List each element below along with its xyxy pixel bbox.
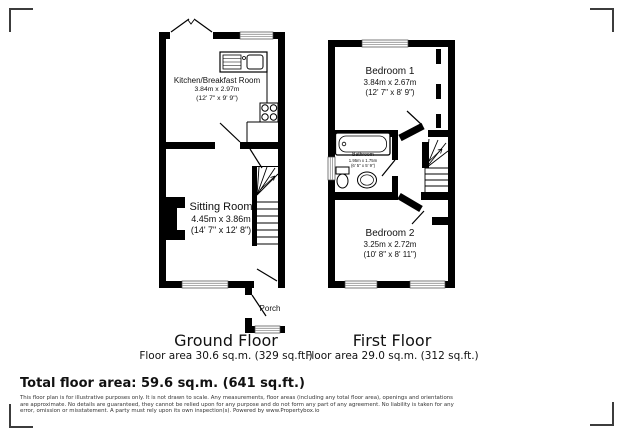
bedroom2-label: Bedroom 2 3.25m x 2.72m (10' 8" x 8' 11"… [363,228,416,260]
kitchen-sink-icon [220,52,267,72]
porch-label: Porch [260,304,281,313]
sitting-room-imperial: (14' 7" x 12' 8") [190,225,253,236]
bedroom1-label: Bedroom 1 3.84m x 2.67m (12' 7" x 8' 9") [364,66,417,98]
bedroom2-metric: 3.25m x 2.72m [363,240,416,250]
stairs-icon [425,139,448,192]
ground-floor-title: Ground Floor [174,332,278,350]
bedroom1-name: Bedroom 1 [364,66,417,78]
kitchen-imperial: (12' 7" x 9' 9") [174,95,260,104]
basin-icon [358,172,377,188]
bathroom-window [328,157,335,180]
kitchen-metric: 3.84m x 2.97m [174,86,260,95]
hob-icon [260,103,278,122]
bedroom2-imperial: (10' 8" x 8' 11") [363,250,416,260]
corner-mark-top-right [590,8,614,32]
first-floor-area: Floor area 29.0 sq.m. (312 sq.ft.) [305,350,478,363]
toilet-icon [336,167,349,188]
door-openings [170,32,278,318]
first-floor-title: First Floor [353,332,432,350]
bedroom1-window [362,40,408,47]
sitting-room-name: Sitting Room [190,201,253,214]
bedroom1-imperial: (12' 7" x 8' 9") [364,88,417,98]
sitting-room-metric: 4.45m x 3.86m [190,214,253,225]
bedroom2-window-left [345,281,377,288]
sitting-room-window [182,281,228,288]
total-floor-area: Total floor area: 59.6 sq.m. (641 sq.ft.… [20,376,305,391]
fireplace-icon [166,197,185,240]
ground-floor-plan [152,18,292,338]
corner-mark-top-left [9,8,33,32]
bathroom-label: Bathroom 1.95m x 1.75m (6' 5" x 5' 9") [349,152,377,168]
floorplan-page: Kitchen/Breakfast Room 3.84m x 2.97m (12… [0,0,620,434]
corner-mark-bottom-right [590,402,614,426]
french-doors-icon [171,19,212,32]
stairs-icon [257,167,278,245]
bedroom1-metric: 3.84m x 2.67m [364,78,417,88]
bathroom-imperial: (6' 5" x 5' 9") [349,163,377,168]
sitting-room-label: Sitting Room 4.45m x 3.86m (14' 7" x 12'… [190,201,253,236]
angled-walls [399,126,423,209]
stairs-up-arrow [260,176,275,190]
ground-floor-area: Floor area 30.6 sq.m. (329 sq.ft.) [139,350,312,363]
kitchen-name: Kitchen/Breakfast Room [174,76,260,86]
disclaimer-text: This floor plan is for illustrative purp… [20,395,460,415]
kitchen-label: Kitchen/Breakfast Room 3.84m x 2.97m (12… [174,76,260,103]
kitchen-window [240,32,273,39]
bedroom2-window-right [410,281,445,288]
bedroom2-name: Bedroom 2 [363,228,416,240]
